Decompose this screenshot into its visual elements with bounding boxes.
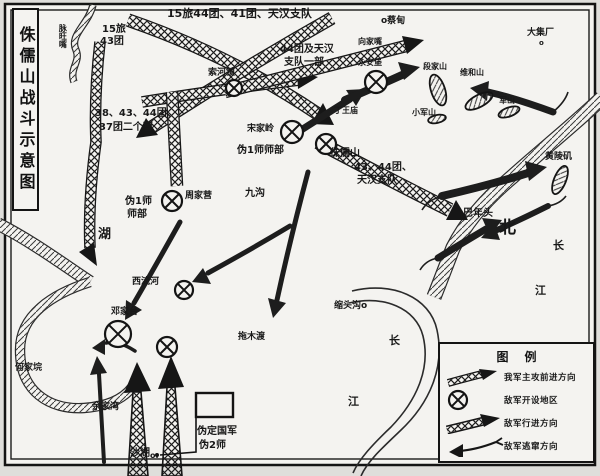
enemy-advance-arrow-icon (444, 412, 504, 434)
map-title-box: 侏儒山战斗示意图 (12, 8, 39, 211)
legend-title: 图例 (444, 348, 589, 365)
enemy-area-marker (157, 337, 177, 357)
enemy-area-mark-icon (444, 389, 504, 411)
enemy-flee-arrow-icon (444, 435, 504, 457)
legend-item: 敌军逃窜方向 (444, 434, 589, 457)
enemy-area-marker (226, 80, 242, 96)
enemy-area-marker (281, 121, 303, 143)
enemy-area-marker (365, 71, 387, 93)
legend-item: 敌军开设地区 (444, 388, 589, 411)
legend-item-label: 敌军逃窜方向 (504, 440, 558, 452)
enemy-area-marker (105, 321, 131, 347)
legend-item-label: 敌军行进方向 (504, 417, 558, 429)
battle-map: 15旅44团、41团、天汉支队15旅43团脉旺嘴o蔡甸大集厂o段家山维和山军山小… (0, 0, 600, 476)
legend-item-label: 我军主攻前进方向 (504, 371, 576, 383)
legend-item-label: 敌军开设地区 (504, 394, 558, 406)
enemy-area-marker (175, 281, 193, 299)
legend-item: 我军主攻前进方向 (444, 365, 589, 388)
legend-item: 敌军行进方向 (444, 411, 589, 434)
enemy-area-marker (162, 191, 182, 211)
legend: 图例 我军主攻前进方向 敌军开设地区 敌军行进方向 (438, 342, 595, 463)
friendly-attack-arrow-icon (444, 366, 504, 388)
enemy-area-marker (316, 134, 336, 154)
map-title: 侏儒山战斗示意图 (14, 26, 38, 194)
